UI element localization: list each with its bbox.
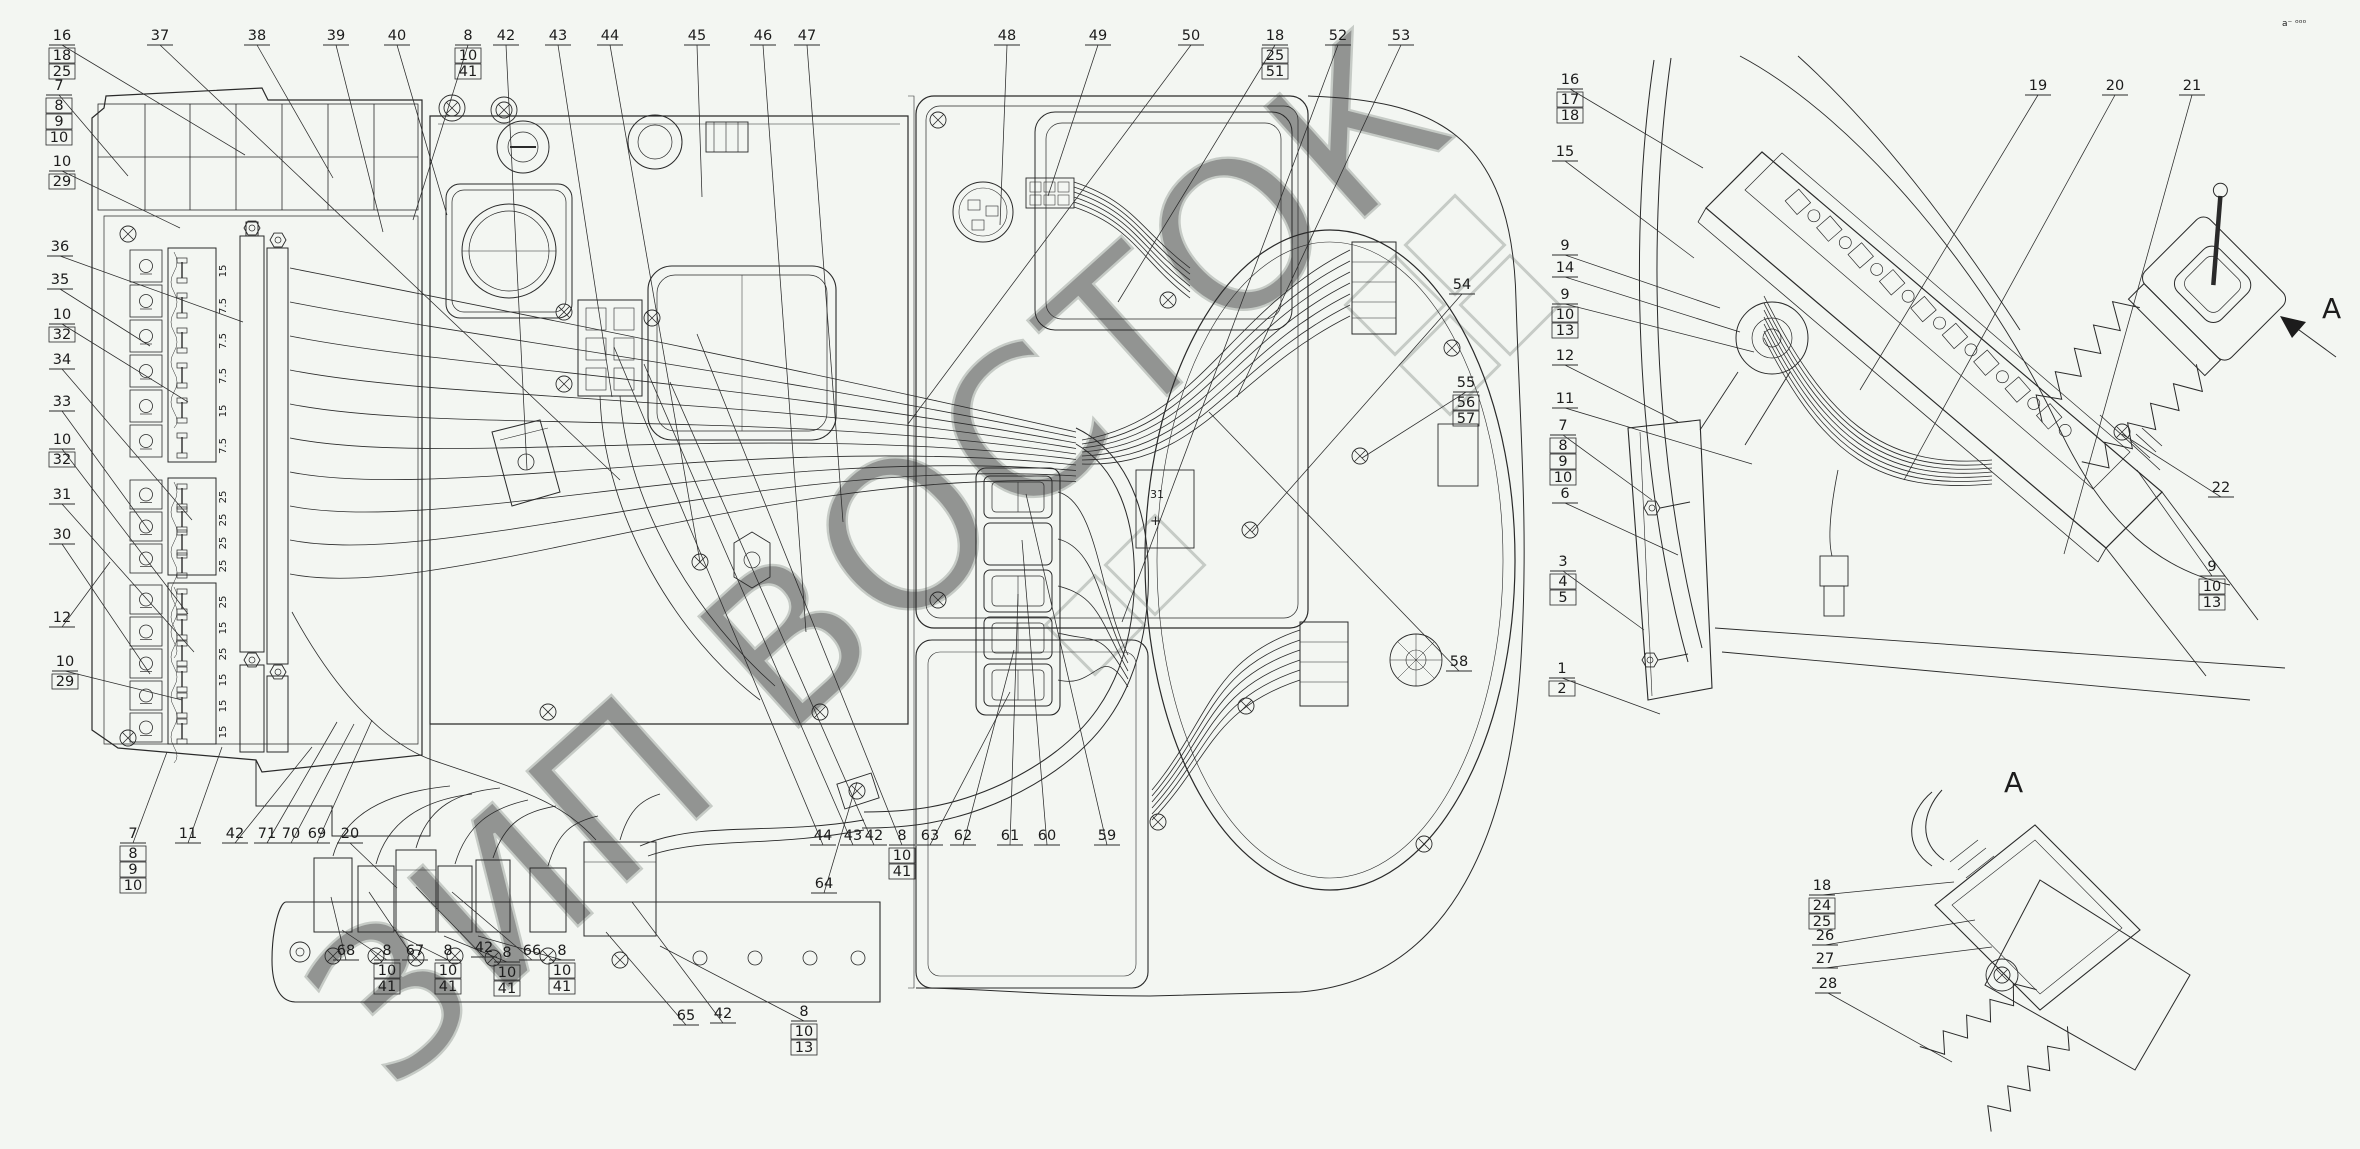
view-arrow-A: A [2280, 292, 2341, 357]
callout-number: 53 [1392, 28, 1410, 44]
callout-33: 33 [49, 394, 75, 411]
callout-number: 19 [2029, 78, 2047, 94]
callout-number: 49 [1089, 28, 1107, 44]
callout-35: 35 [47, 272, 73, 289]
callout-number: 20 [2106, 78, 2124, 94]
callout-number: 7 [1558, 418, 1567, 434]
callout-sub-number: 41 [439, 979, 457, 995]
view-arrow-label: A [2322, 292, 2341, 325]
callout-number: 44 [814, 828, 832, 844]
callout-sub-number: 10 [498, 965, 516, 981]
callout-67: 67 [402, 943, 428, 960]
callout-sub-number: 9 [54, 114, 63, 130]
callout-42: 42 [493, 28, 519, 45]
callout-number: 10 [53, 154, 71, 170]
callout-number: 22 [2212, 480, 2230, 496]
callout-number: 9 [2207, 559, 2216, 575]
callout-18: 182551 [1262, 28, 1288, 80]
callout-number: 40 [388, 28, 406, 44]
callout-45: 45 [684, 28, 710, 45]
side-view: A [1628, 56, 2341, 700]
callout-number: 54 [1453, 277, 1471, 293]
callout-number: 14 [1556, 260, 1574, 276]
callout-number: 70 [282, 826, 300, 842]
callout-46: 46 [750, 28, 776, 45]
callout-sub-number: 41 [553, 979, 571, 995]
callout-number: 28 [1819, 976, 1837, 992]
fuse-rating-label: 25 [218, 491, 229, 504]
callout-number: 39 [327, 28, 345, 44]
callout-sub-number: 10 [2203, 579, 2221, 595]
fan2-icon [130, 649, 162, 678]
callout-sub-number: 32 [53, 452, 71, 468]
callout-12: 12 [49, 610, 75, 627]
callout-sub-number: 8 [54, 98, 63, 114]
callout-53: 53 [1388, 28, 1414, 45]
detail-view-a: A [1912, 766, 2190, 1132]
callout-number: 11 [1556, 391, 1574, 407]
callout-55: 555657 [1453, 375, 1479, 427]
callout-16: 161825 [49, 28, 75, 80]
callout-62: 62 [950, 828, 976, 845]
gauge-30-icon [130, 390, 162, 422]
callout-number: 71 [258, 826, 276, 842]
callout-47: 47 [794, 28, 820, 45]
callout-48: 48 [994, 28, 1020, 45]
callout-sub-number: 18 [1561, 108, 1579, 124]
callout-70: 70 [278, 826, 304, 843]
callout-number: 67 [406, 943, 424, 959]
callout-number: 8 [382, 943, 391, 959]
callout-38: 38 [244, 28, 270, 45]
callout-7: 78910 [1550, 418, 1576, 486]
callout-number: 7 [54, 78, 63, 94]
fuse-block-1: 157.57.57.5157.5 [168, 248, 229, 462]
fan-icon [130, 480, 162, 509]
bulb-icon [130, 585, 162, 614]
callout-sub-number: 10 [553, 963, 571, 979]
callout-sub-number: 57 [1457, 411, 1475, 427]
callout-number: 59 [1098, 828, 1116, 844]
lamp-high-icon [130, 355, 162, 387]
callout-number: 20 [341, 826, 359, 842]
callout-number: 8 [502, 945, 511, 961]
callout-sub-number: 29 [56, 674, 74, 690]
callout-sub-number: 10 [439, 963, 457, 979]
callout-number: 16 [53, 28, 71, 44]
callout-number: 63 [921, 828, 939, 844]
callout-30: 30 [49, 527, 75, 544]
callout-16: 161718 [1557, 72, 1583, 124]
callout-15: 15 [1552, 144, 1578, 161]
callout-number: 8 [897, 828, 906, 844]
callout-number: 58 [1450, 654, 1468, 670]
callout-number: 66 [523, 943, 541, 959]
callout-9: 91013 [2199, 559, 2225, 611]
callout-12: 12 [1552, 348, 1578, 365]
callout-11: 11 [175, 826, 201, 843]
callout-sub-number: 13 [795, 1040, 813, 1056]
callout-10: 1029 [52, 654, 78, 690]
callout-sub-number: 9 [128, 862, 137, 878]
callout-number: 21 [2183, 78, 2201, 94]
callout-number: 1 [1557, 661, 1566, 677]
callout-8: 81013 [791, 1004, 817, 1056]
fuse-rating-label: 7.5 [218, 438, 229, 454]
callout-number: 65 [677, 1008, 695, 1024]
detail-view-title: A [2004, 766, 2023, 799]
callout-58: 58 [1446, 654, 1472, 671]
callout-sub-number: 41 [893, 864, 911, 880]
callout-number: 12 [53, 610, 71, 626]
callout-number: 50 [1182, 28, 1200, 44]
callout-59: 59 [1094, 828, 1120, 845]
callout-14: 14 [1552, 260, 1578, 277]
callout-42: 42 [471, 940, 497, 957]
fuse-rating-label: 25 [218, 596, 229, 609]
fuse-rating-label: 25 [218, 560, 229, 573]
callout-number: 43 [549, 28, 567, 44]
callout-number: 62 [954, 828, 972, 844]
callout-number: 9 [1560, 238, 1569, 254]
fuse-rating-label: 7.5 [218, 333, 229, 349]
callout-number: 68 [337, 943, 355, 959]
callout-34: 34 [49, 352, 75, 369]
callout-number: 6 [1560, 486, 1569, 502]
callout-number: 36 [51, 239, 69, 255]
callout-10: 1032 [49, 307, 75, 343]
callout-sub-number: 10 [1554, 470, 1572, 486]
callout-9: 9 [1552, 238, 1578, 255]
callout-number: 8 [463, 28, 472, 44]
callout-number: 7 [128, 826, 137, 842]
callout-63: 63 [917, 828, 943, 845]
callout-64: 64 [811, 876, 837, 893]
callout-sub-number: 10 [459, 48, 477, 64]
callout-sub-number: 9 [1558, 454, 1567, 470]
callout-number: 12 [1556, 348, 1574, 364]
ring-icon [130, 713, 162, 742]
callout-9: 91013 [1552, 287, 1578, 339]
callout-sub-number: 10 [124, 878, 142, 894]
callout-37: 37 [147, 28, 173, 45]
callout-18: 182425 [1809, 878, 1835, 930]
callout-44: 44 [597, 28, 623, 45]
callout-number: 34 [53, 352, 71, 368]
callout-50: 50 [1178, 28, 1204, 45]
callout-number: 16 [1561, 72, 1579, 88]
callout-number: 10 [53, 307, 71, 323]
fuse-rating-label: 25 [218, 514, 229, 527]
callout-number: 27 [1816, 951, 1834, 967]
fuse-rating-label: 15 [218, 700, 229, 713]
callout-40: 40 [384, 28, 410, 45]
callout-66: 66 [519, 943, 545, 960]
callout-8: 81041 [889, 828, 915, 880]
callout-sub-number: 8 [128, 846, 137, 862]
callout-sub-number: 29 [53, 174, 71, 190]
callout-7: 78910 [120, 826, 146, 894]
callout-number: 47 [798, 28, 816, 44]
fuse-block-3: 251525151515 [168, 583, 229, 763]
callout-number: 3 [1558, 554, 1567, 570]
callout-44: 44 [810, 828, 836, 845]
callout-number: 11 [179, 826, 197, 842]
callout-6: 6 [1552, 486, 1578, 503]
callout-10: 1032 [49, 432, 75, 468]
callout-number: 52 [1329, 28, 1347, 44]
callout-71: 71 [254, 826, 280, 843]
callout-number: 37 [151, 28, 169, 44]
callout-68: 68 [333, 943, 359, 960]
callout-3: 345 [1550, 554, 1576, 606]
callout-31: 31 [49, 487, 75, 504]
drawing-canvas: ЗИП ВОСТОК [0, 0, 2360, 1149]
fuse-rating-label: 25 [218, 537, 229, 550]
updown-arrows-icon [130, 250, 162, 282]
callout-number: 45 [688, 28, 706, 44]
worklamp-icon [130, 681, 162, 710]
callout-54: 54 [1449, 277, 1475, 294]
callout-sub-number: 32 [53, 327, 71, 343]
callout-sub-number: 13 [2203, 595, 2221, 611]
engineering-drawing-sheet: ЗИП ВОСТОК [0, 0, 2360, 1149]
callout-number: 64 [815, 876, 833, 892]
callout-sub-number: 10 [378, 963, 396, 979]
callout-21: 21 [2179, 78, 2205, 95]
icon-strip [130, 585, 162, 742]
fuse-rating-label: 7.5 [218, 368, 229, 384]
callout-number: 55 [1457, 375, 1475, 391]
callout-number: 8 [443, 943, 452, 959]
callout-sub-number: 18 [53, 48, 71, 64]
callout-number: 42 [497, 28, 515, 44]
fuse-rating-label: 15 [218, 405, 229, 418]
callout-sub-number: 17 [1561, 92, 1579, 108]
callout-number: 18 [1813, 878, 1831, 894]
callout-number: 61 [1001, 828, 1019, 844]
callout-sub-number: 41 [378, 979, 396, 995]
callout-number: 15 [1556, 144, 1574, 160]
callout-42: 42 [222, 826, 248, 843]
watermark: ЗИП ВОСТОК [265, 0, 1560, 1131]
callout-number: 9 [1560, 287, 1569, 303]
callout-65: 65 [673, 1008, 699, 1025]
icon-strip [130, 250, 162, 457]
callout-sub-number: 41 [459, 64, 477, 80]
callout-number: 60 [1038, 828, 1056, 844]
callout-39: 39 [323, 28, 349, 45]
callout-sub-number: 5 [1558, 590, 1567, 606]
gauge-icon [130, 285, 162, 317]
callout-sub-number: 4 [1558, 574, 1567, 590]
callout-number: 18 [1266, 28, 1284, 44]
fuse-rating-label: 15 [218, 265, 229, 278]
callout-43: 43 [840, 828, 866, 845]
horn-icon [130, 617, 162, 646]
callout-number: 31 [53, 487, 71, 503]
callout-69: 69 [304, 826, 330, 843]
fuse-rating-label: 7.5 [218, 298, 229, 314]
callout-52: 52 [1325, 28, 1351, 45]
callout-number: 10 [56, 654, 74, 670]
callout-sub-number: 2 [1557, 681, 1566, 697]
callout-42: 42 [710, 1006, 736, 1023]
fuse-panel: 157.57.57.5157.525252525251525151515 [168, 248, 229, 763]
callout-60: 60 [1034, 828, 1060, 845]
callout-number: 44 [601, 28, 619, 44]
battery-terminal-31: 31 [1150, 488, 1164, 501]
callout-49: 49 [1085, 28, 1111, 45]
callout-7: 78910 [46, 78, 72, 146]
callout-sub-number: 56 [1457, 395, 1475, 411]
callout-42: 42 [861, 828, 887, 845]
callout-10: 1029 [49, 154, 75, 190]
callout-sub-number: 10 [1556, 307, 1574, 323]
callout-number: 35 [51, 272, 69, 288]
callout-sub-number: 41 [498, 981, 516, 997]
callout-61: 61 [997, 828, 1023, 845]
callout-sub-number: 10 [795, 1024, 813, 1040]
fuse-rating-label: 15 [218, 622, 229, 635]
corner-marks: a⁻ ᵒᵒᵒ [2282, 19, 2307, 29]
callout-28: 28 [1815, 976, 1841, 993]
callout-20: 20 [337, 826, 363, 843]
callout-sub-number: 51 [1266, 64, 1284, 80]
callout-number: 38 [248, 28, 266, 44]
callout-sub-number: 13 [1556, 323, 1574, 339]
callout-number: 8 [557, 943, 566, 959]
callout-26: 26 [1812, 928, 1838, 945]
wiper-icon [130, 425, 162, 457]
callout-number: 30 [53, 527, 71, 543]
callout-sub-number: 10 [50, 130, 68, 146]
callout-22: 22 [2208, 480, 2234, 497]
fuse-rating-label: 15 [218, 726, 229, 739]
callout-11: 11 [1552, 391, 1578, 408]
callout-19: 19 [2025, 78, 2051, 95]
callout-27: 27 [1812, 951, 1838, 968]
callout-number: 48 [998, 28, 1016, 44]
callout-sub-number: 25 [1266, 48, 1284, 64]
callout-43: 43 [545, 28, 571, 45]
callout-20: 20 [2102, 78, 2128, 95]
callout-8: 81041 [455, 28, 481, 80]
callout-number: 10 [53, 432, 71, 448]
callout-number: 43 [844, 828, 862, 844]
callout-number: 42 [714, 1006, 732, 1022]
callout-sub-number: 24 [1813, 898, 1831, 914]
callout-sub-number: 10 [893, 848, 911, 864]
callout-number: 33 [53, 394, 71, 410]
callout-number: 42 [226, 826, 244, 842]
callout-number: 26 [1816, 928, 1834, 944]
callout-number: 46 [754, 28, 772, 44]
callout-number: 69 [308, 826, 326, 842]
callout-number: 42 [865, 828, 883, 844]
callout-number: 42 [475, 940, 493, 956]
fuse-rating-label: 15 [218, 674, 229, 687]
callout-1: 12 [1549, 661, 1575, 697]
fuse-rating-label: 25 [218, 648, 229, 661]
callout-sub-number: 8 [1558, 438, 1567, 454]
callout-36: 36 [47, 239, 73, 256]
callout-number: 8 [799, 1004, 808, 1020]
